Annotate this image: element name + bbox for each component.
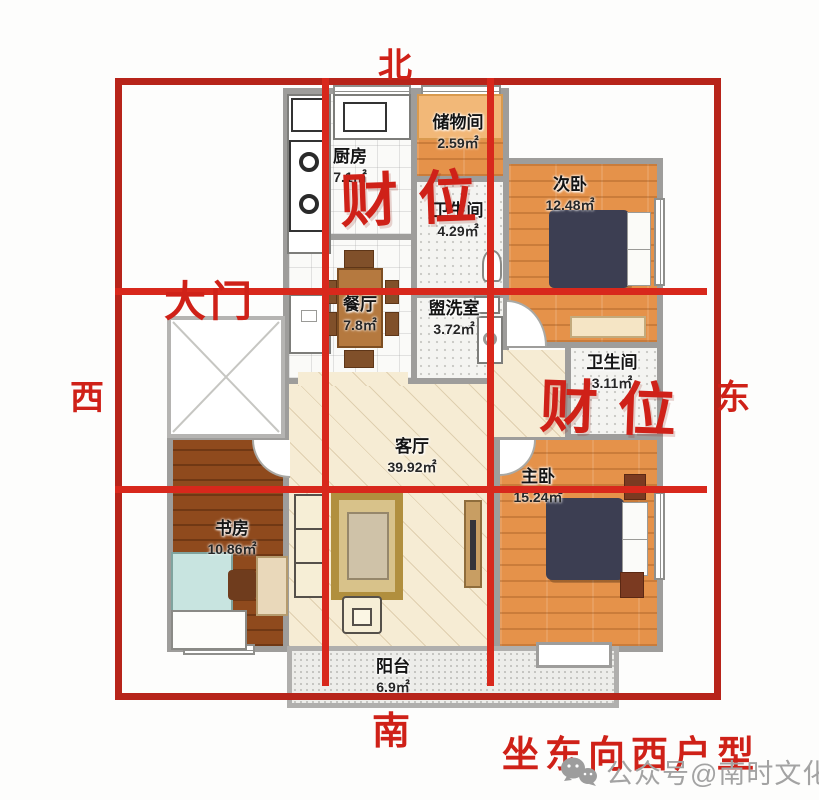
wechat-icon <box>560 756 598 788</box>
watermark: 公众号@南时文化 <box>560 752 819 791</box>
compass-east: 东 <box>716 370 750 419</box>
grid-horizontal-2 <box>115 486 707 493</box>
main-door-label: 大门 <box>164 268 256 329</box>
floor-plan-canvas: 厨房7.1㎡ 储物间2.59㎡ 卫生间4.29㎡ 次卧12.48㎡ 餐厅7.8㎡… <box>0 0 819 800</box>
compass-south: 南 <box>372 700 410 755</box>
wealth-position-1: 财位 <box>339 149 498 238</box>
watermark-text: 公众号@南时文化 <box>606 752 819 791</box>
grid-vertical-1 <box>322 78 329 686</box>
wealth-position-2: 财位 <box>539 359 698 448</box>
compass-north: 北 <box>378 38 412 87</box>
compass-west: 西 <box>70 370 104 419</box>
